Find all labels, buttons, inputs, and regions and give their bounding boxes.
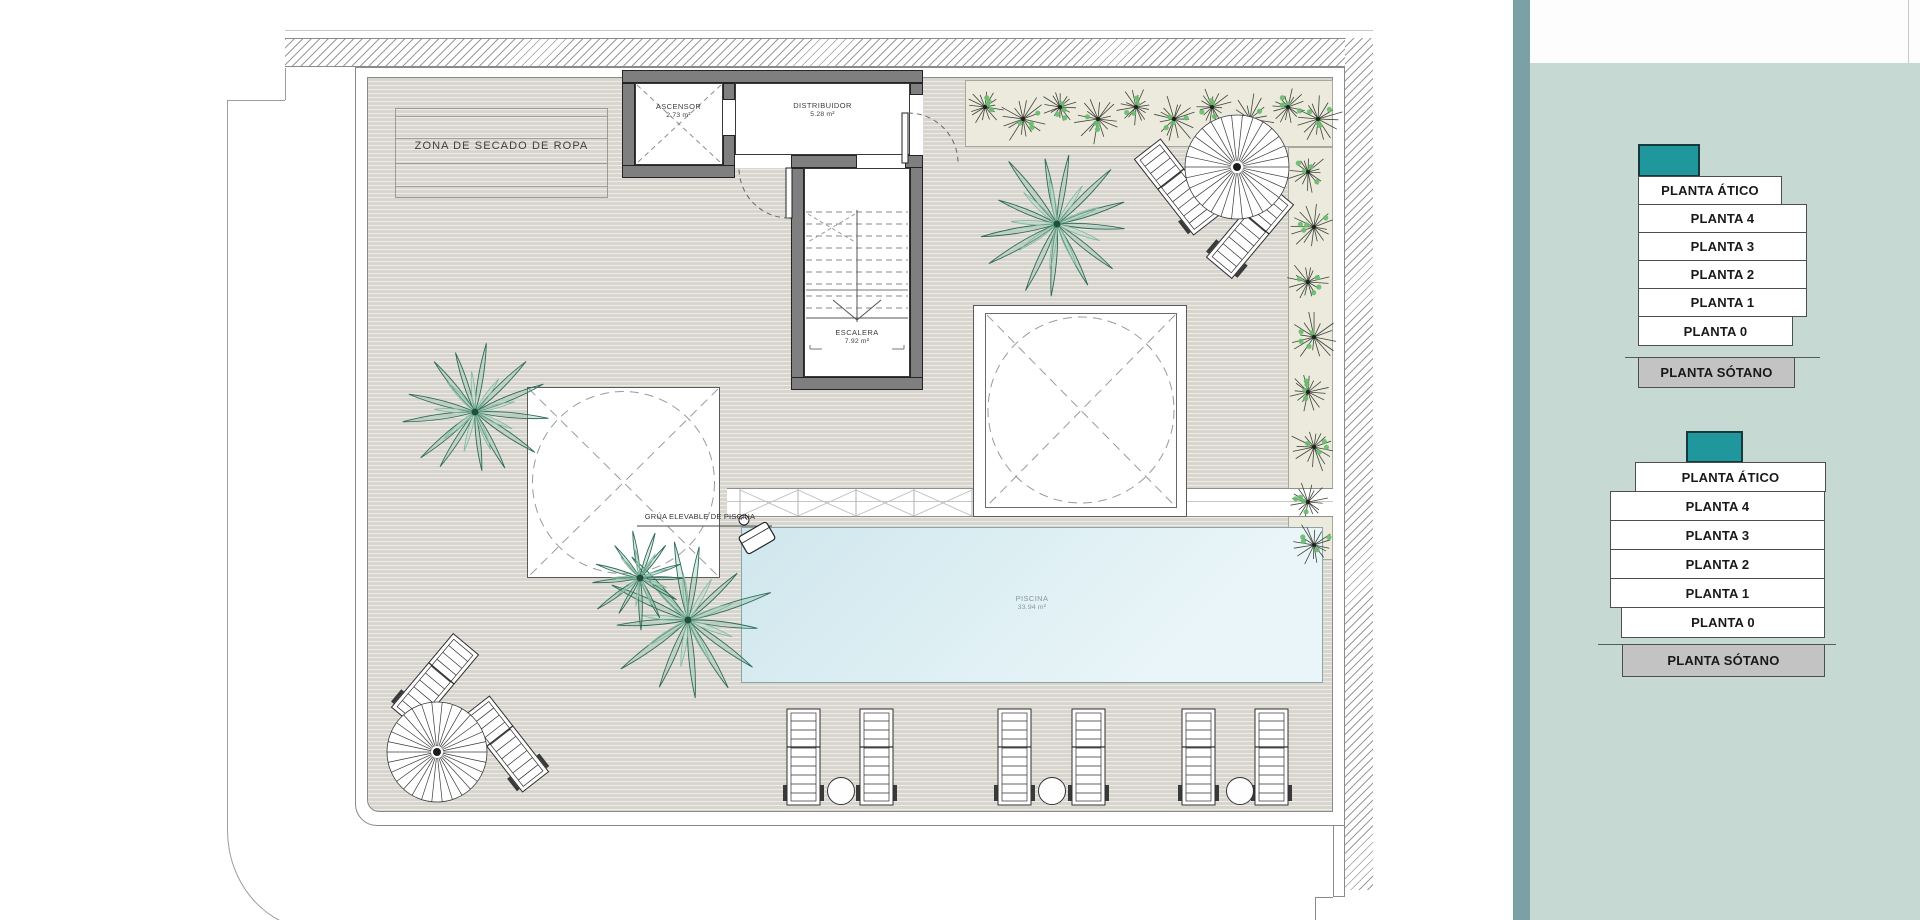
right-step-vline <box>1315 897 1316 920</box>
wall-segment <box>791 377 923 390</box>
top-hatch-wall <box>285 38 1373 67</box>
wall-segment <box>723 83 735 100</box>
sidebar-top-margin <box>1530 0 1920 63</box>
b2-floor-button-planta-atico[interactable]: PLANTA ÁTICO <box>1635 462 1826 492</box>
wall-segment <box>791 168 804 390</box>
b2-floor-button-planta-1[interactable]: PLANTA 1 <box>1610 578 1825 608</box>
wall-segment <box>622 83 635 178</box>
roof-top-edge-line <box>285 30 1373 31</box>
b2-floor-button-planta-4[interactable]: PLANTA 4 <box>1610 491 1825 521</box>
right-step-band <box>1333 826 1345 897</box>
wall-segment <box>622 70 923 83</box>
door-threshold <box>723 100 735 135</box>
right-step-hline <box>1315 897 1333 898</box>
building-2-indicator <box>1686 431 1743 463</box>
b1-floor-button-planta-2[interactable]: PLANTA 2 <box>1638 260 1807 289</box>
ascensor-room <box>635 83 723 165</box>
escalera-room <box>804 168 910 377</box>
wall-segment <box>910 163 923 390</box>
b2-floor-button-planta-sotano[interactable]: PLANTA SÓTANO <box>1622 644 1825 677</box>
b2-floor-button-planta-0[interactable]: PLANTA 0 <box>1621 607 1825 638</box>
building-outer-edge <box>227 100 367 920</box>
b1-floor-button-planta-0[interactable]: PLANTA 0 <box>1638 316 1793 346</box>
clothesline <box>396 163 607 164</box>
zona-secado-area <box>395 108 608 198</box>
door-threshold <box>735 155 791 168</box>
wall-segment <box>910 83 923 95</box>
wall-segment <box>622 165 735 178</box>
sidebar-frame-line <box>1908 0 1909 63</box>
outer-edge-step-v <box>285 68 286 100</box>
pool <box>741 527 1323 683</box>
outer-edge-step-h <box>227 100 285 101</box>
b2-floor-button-planta-3[interactable]: PLANTA 3 <box>1610 520 1825 550</box>
b1-floor-button-planta-3[interactable]: PLANTA 3 <box>1638 232 1807 261</box>
distribuidor-room <box>735 83 910 155</box>
wall-segment <box>905 155 923 168</box>
planter-top <box>965 80 1333 147</box>
door-threshold <box>910 95 923 163</box>
door-threshold <box>857 155 905 168</box>
skylight-right-inner <box>985 313 1177 508</box>
floor-plan-app: ZONA DE SECADO DE ROPA ASCENSOR 2.73 m² … <box>0 0 1920 920</box>
b1-floor-button-planta-atico[interactable]: PLANTA ÁTICO <box>1638 176 1782 205</box>
skylight-left <box>527 387 720 578</box>
b1-floor-button-planta-1[interactable]: PLANTA 1 <box>1638 288 1807 317</box>
b1-floor-button-planta-sotano[interactable]: PLANTA SÓTANO <box>1638 357 1795 388</box>
building-1-indicator <box>1638 144 1700 177</box>
right-hatch-wall <box>1345 38 1373 890</box>
clothesline <box>396 116 607 117</box>
roof-plan-canvas: ZONA DE SECADO DE ROPA ASCENSOR 2.73 m² … <box>0 0 1513 920</box>
clothesline <box>396 186 607 187</box>
b1-floor-button-planta-4[interactable]: PLANTA 4 <box>1638 204 1807 233</box>
sidebar-divider-strip <box>1513 0 1530 920</box>
clothesline <box>396 138 607 139</box>
wall-segment <box>791 155 857 168</box>
b2-floor-button-planta-2[interactable]: PLANTA 2 <box>1610 549 1825 579</box>
